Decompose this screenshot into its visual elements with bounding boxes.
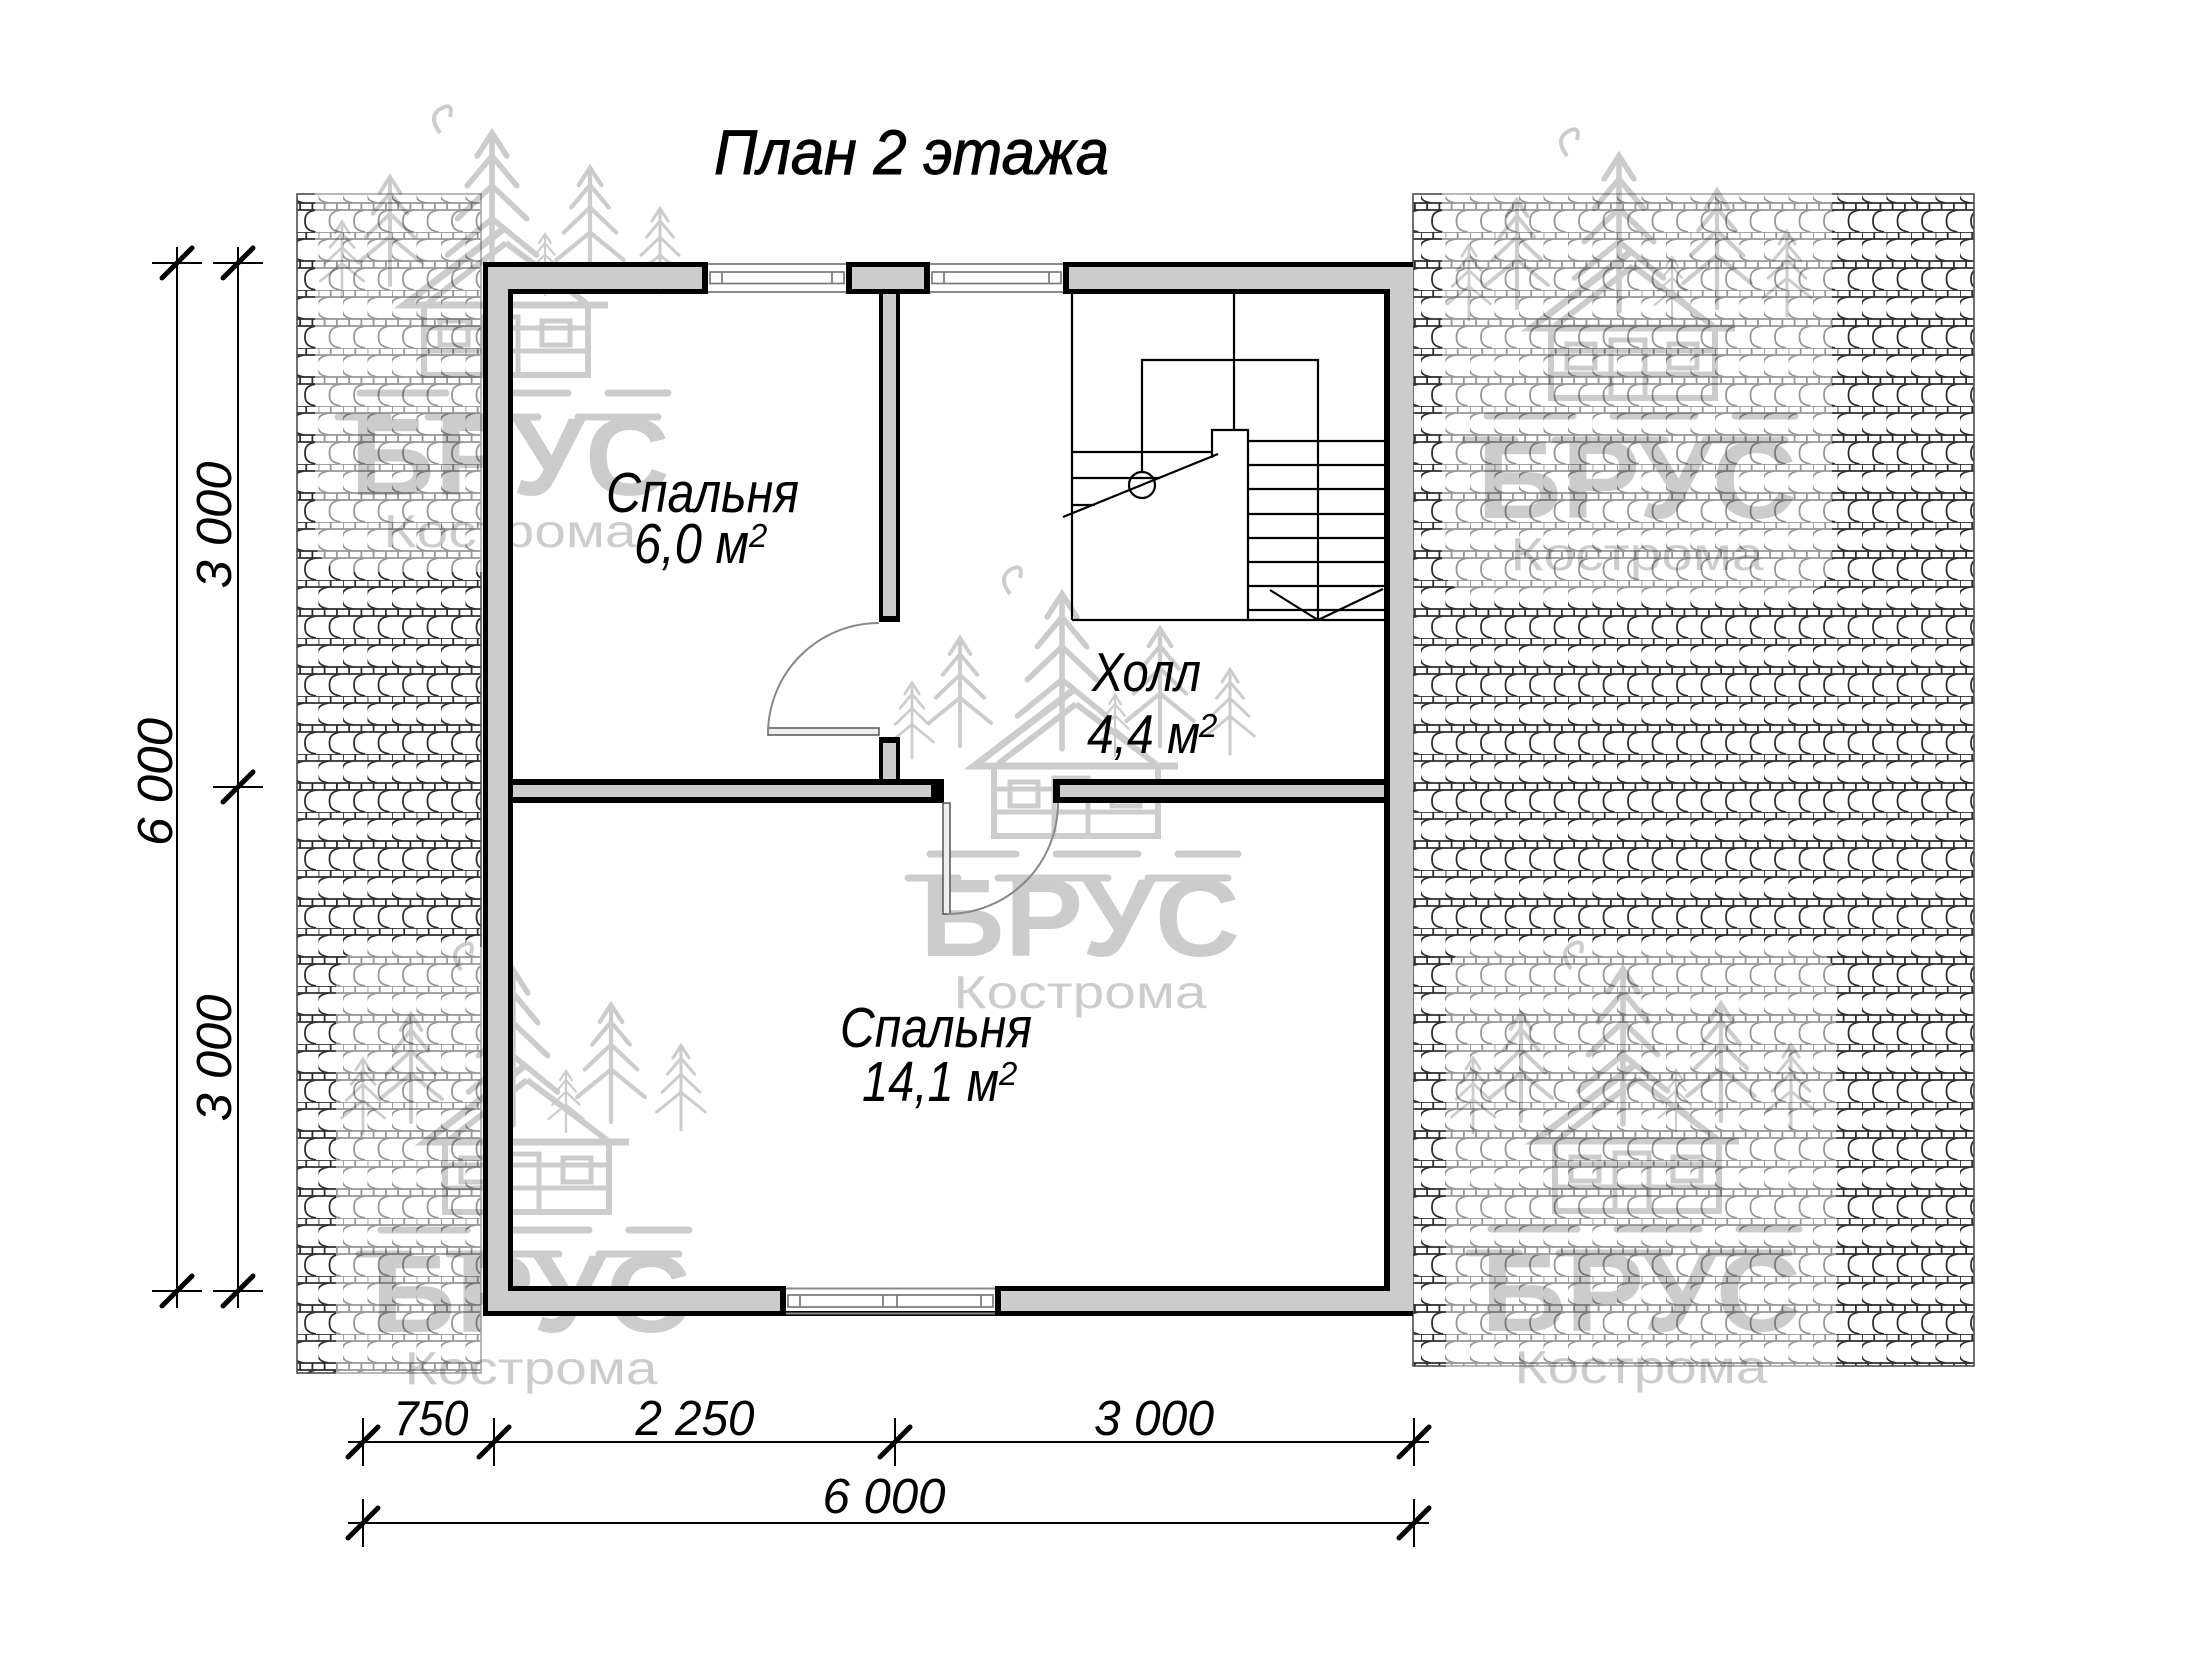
svg-text:План 2 этажа: План 2 этажа (714, 118, 1109, 188)
svg-text:3 000: 3 000 (1094, 1392, 1214, 1446)
svg-text:2: 2 (1198, 707, 1217, 744)
svg-text:2: 2 (998, 1055, 1017, 1092)
svg-text:6 000: 6 000 (823, 1470, 946, 1524)
svg-text:3 000: 3 000 (188, 995, 242, 1122)
svg-text:4,4 м: 4,4 м (1087, 703, 1200, 765)
svg-text:6 000: 6 000 (129, 718, 183, 846)
svg-text:2: 2 (748, 517, 767, 554)
svg-text:2 250: 2 250 (635, 1392, 755, 1446)
svg-text:14,1 м: 14,1 м (862, 1050, 999, 1114)
svg-text:3 000: 3 000 (188, 462, 242, 589)
svg-text:750: 750 (394, 1392, 469, 1446)
svg-text:Холл: Холл (1090, 641, 1201, 703)
svg-text:6,0 м: 6,0 м (634, 512, 749, 576)
